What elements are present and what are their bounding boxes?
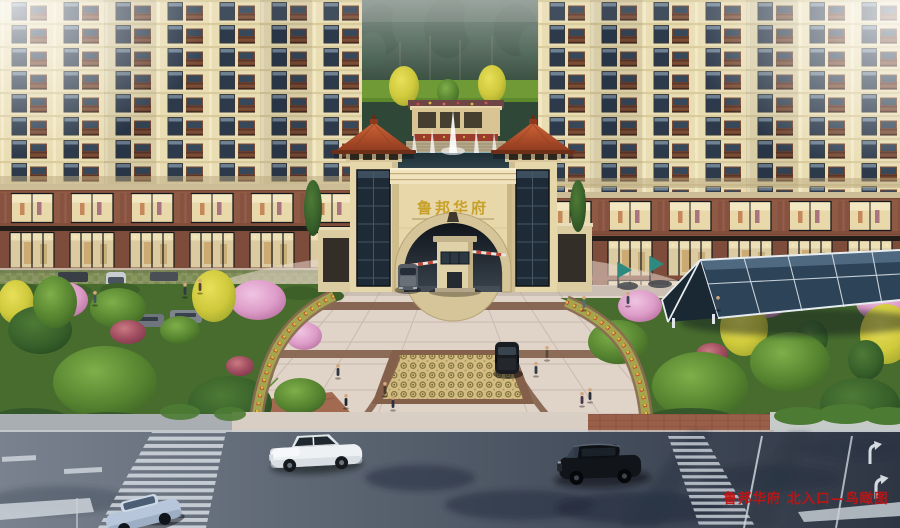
shop-awning [538, 236, 900, 241]
gate-cornice [390, 170, 516, 184]
cafe-table [618, 282, 638, 290]
cornice [538, 192, 900, 198]
roof-finial [372, 115, 376, 119]
rendering-canvas: 鲁邦华府 [0, 0, 900, 528]
watermark-caption: 鲁邦华府 北入口—鸟瞰图 [722, 490, 888, 507]
brick-sidewalk [588, 414, 774, 432]
courtyard-pergola [410, 106, 502, 136]
roof-finial [531, 115, 535, 119]
cypress-tree [570, 180, 586, 232]
gate-wing-wall-right [551, 223, 593, 292]
booth-roof [433, 236, 477, 242]
car-exiting-gate [395, 264, 421, 294]
black-car-on-plaza [493, 342, 523, 379]
booth-window [441, 252, 469, 264]
cafe-table [648, 280, 672, 288]
blossom-tree [618, 290, 662, 322]
green-tree [160, 316, 200, 344]
green-tree [750, 332, 830, 392]
green-tree [274, 378, 326, 414]
curb [0, 430, 900, 432]
juniper [848, 340, 884, 380]
blossom-tree [230, 280, 286, 320]
gate-wing-wall-left [317, 227, 355, 292]
purple-shrub [226, 356, 254, 376]
ginkgo-tree [478, 65, 506, 103]
aerial-rendering: 鲁邦华府 [0, 0, 900, 528]
booth-door [447, 272, 462, 290]
green-tree [53, 346, 157, 418]
glass-canopy [662, 250, 900, 336]
cypress-tree [304, 180, 322, 236]
green-tree [33, 276, 77, 328]
parked-car [150, 272, 178, 281]
ginkgo-tree [192, 270, 236, 322]
red-maple [110, 320, 146, 344]
red-flower-band [414, 134, 498, 141]
